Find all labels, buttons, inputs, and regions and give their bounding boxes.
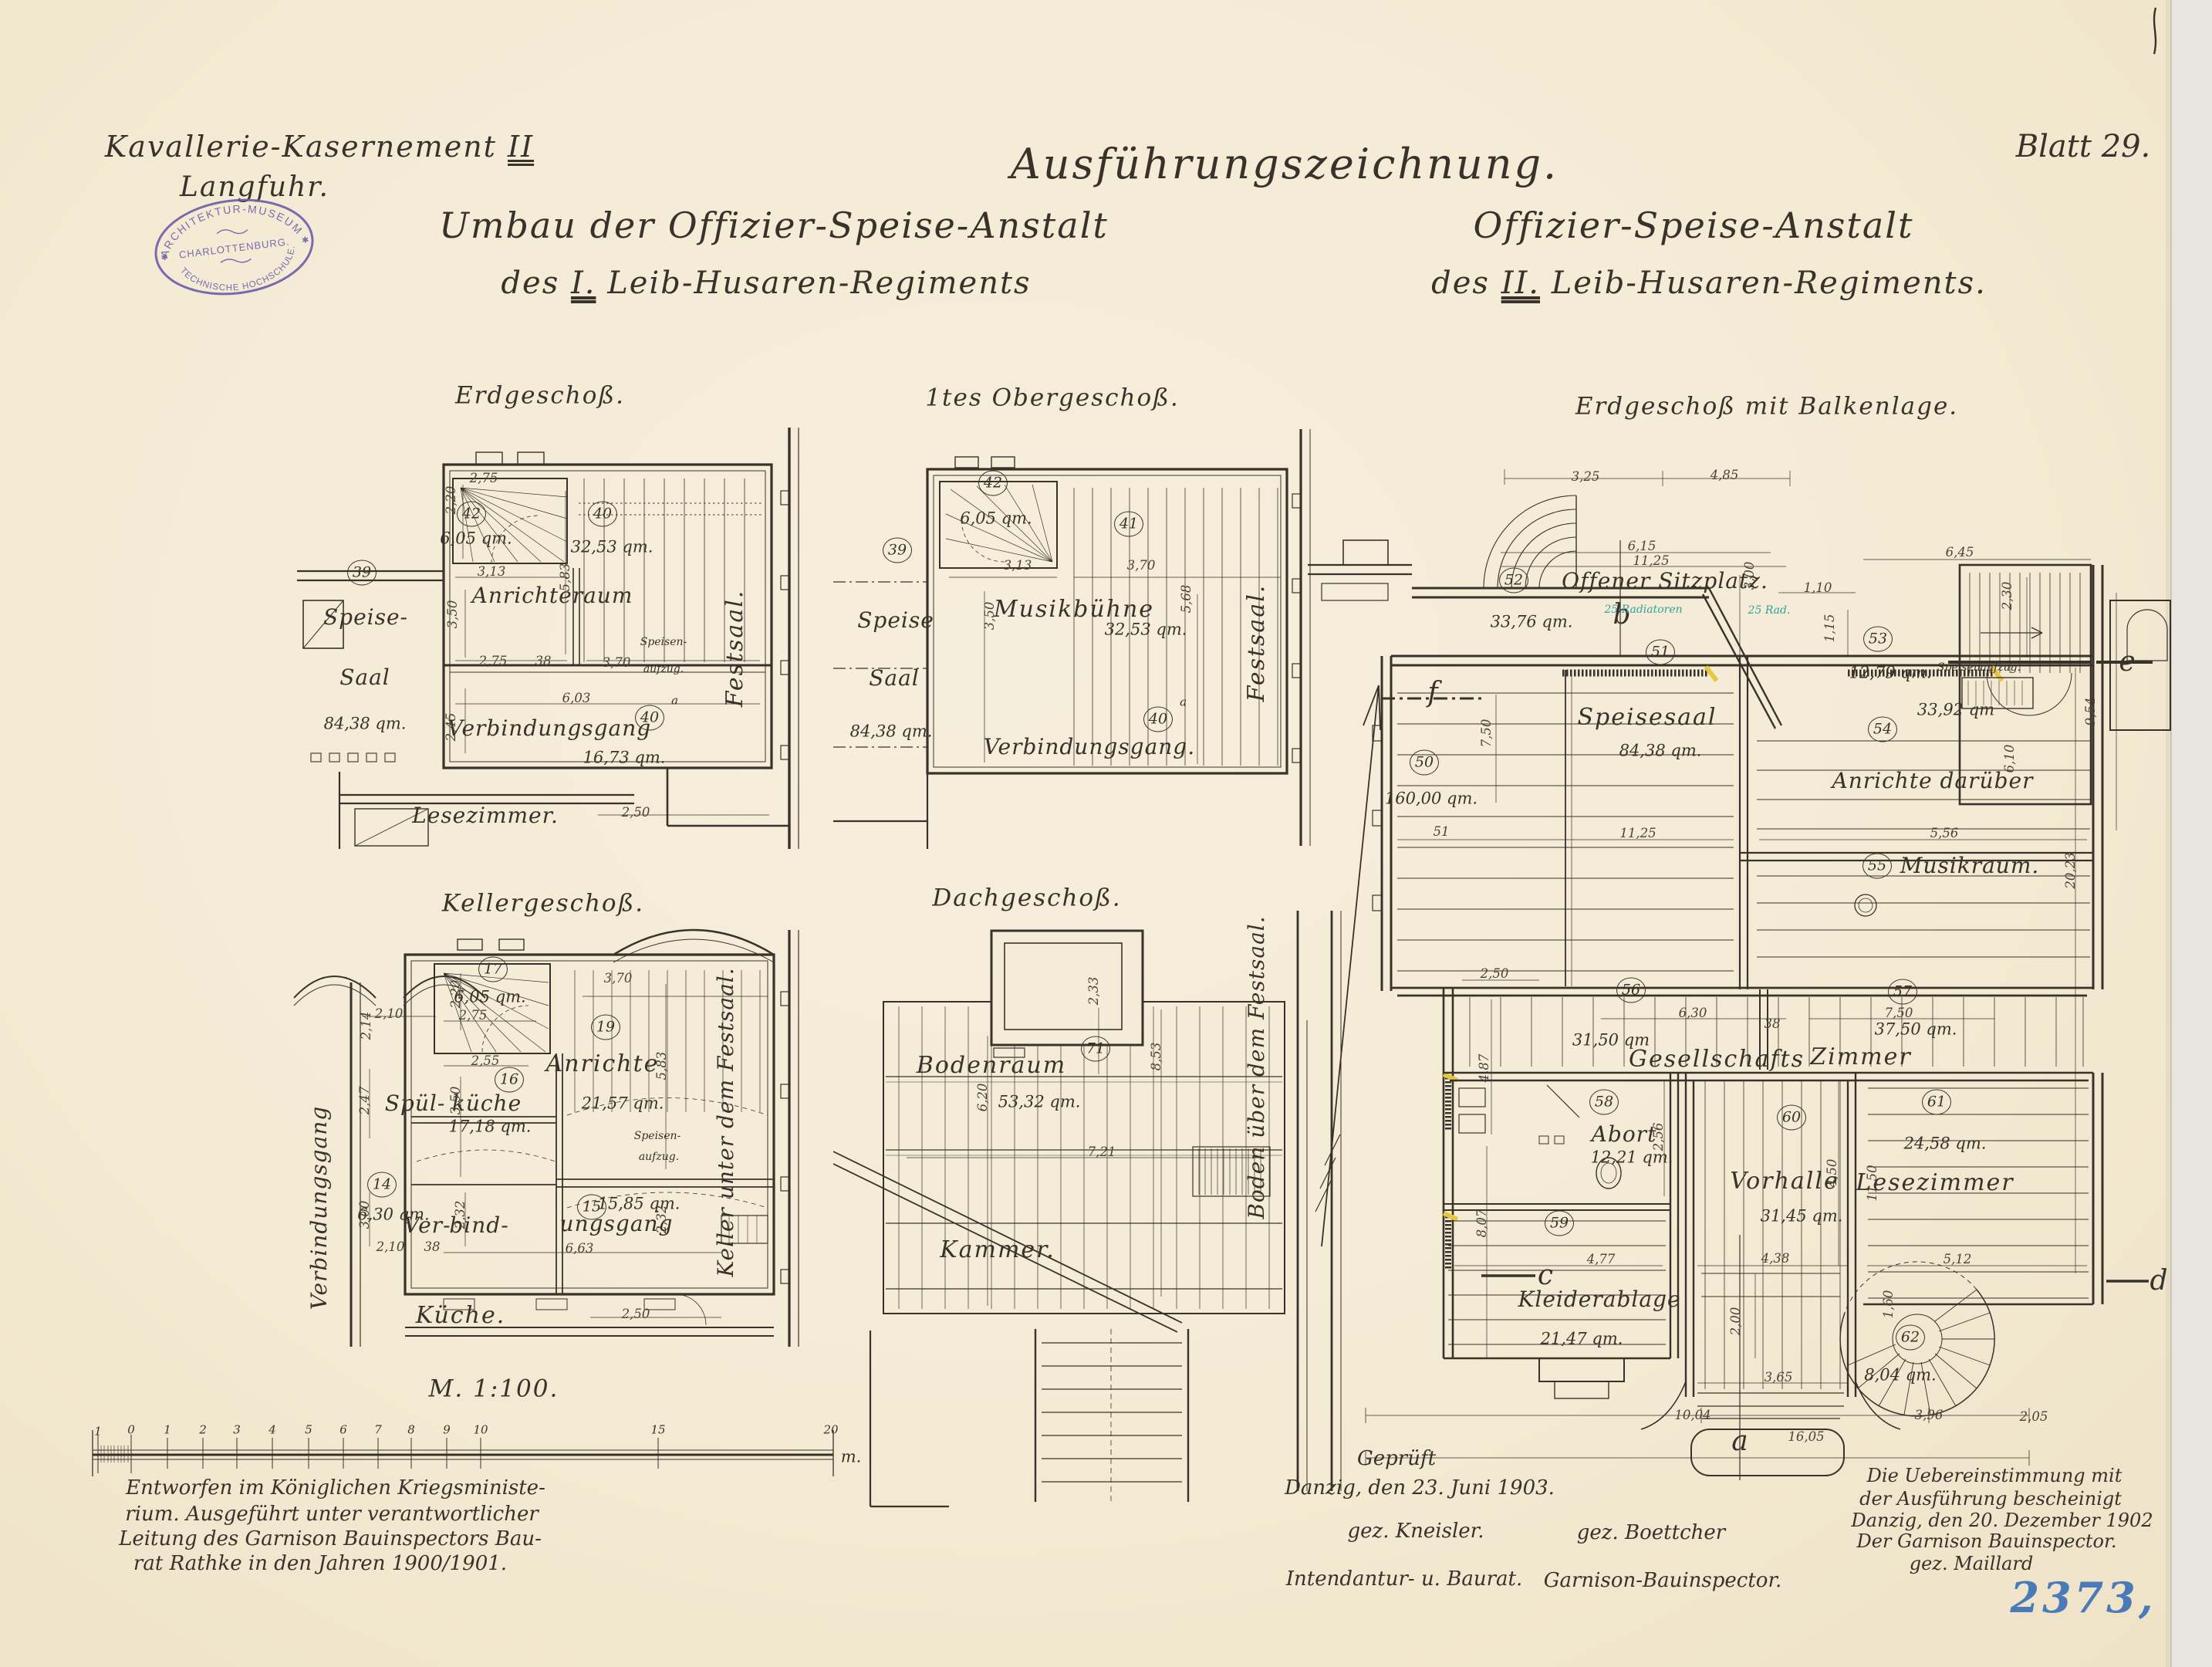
dim-label: 6,03	[562, 692, 591, 705]
note-designed-line: rat Rathke in den Jahren 1900/1901.	[133, 1554, 507, 1574]
dim-label: 38	[1765, 1018, 1781, 1031]
radiator-note: 25 Radiatoren	[1604, 604, 1682, 615]
drawing-sheet: Kavallerie-Kasernement II Langfuhr. Ausf…	[0, 0, 2212, 1667]
room-label-vertical: Festsaal.	[1245, 584, 1268, 702]
dim-label: 6,30	[1679, 1007, 1707, 1020]
site-title: Kavallerie-Kasernement II	[105, 132, 534, 161]
section-letter: d	[2150, 1267, 2167, 1295]
dim-label: 6,63	[566, 1243, 594, 1256]
dim-label: 3,13	[1004, 560, 1032, 573]
room-number: 52	[1499, 568, 1528, 593]
dim-label: 5,12	[1944, 1253, 1972, 1266]
dim-label: 3,50	[450, 1087, 463, 1115]
area-label: 16,73 qm.	[583, 750, 666, 766]
area-label: 12,21 qm.	[1591, 1150, 1673, 1166]
dim-label: 2,30	[2001, 582, 2014, 610]
dim-label: 2,75	[479, 655, 508, 668]
dim-label: 7,21	[1088, 1146, 1116, 1159]
scale-tick: 7	[374, 1425, 382, 1436]
dim-label: 1,10	[1804, 582, 1832, 595]
room-label: Anrichte darüber	[1832, 770, 2034, 792]
area-label: 17,18 qm.	[449, 1119, 532, 1135]
dim-label: 1,60	[1883, 1290, 1896, 1319]
room-label: Vorhalle	[1730, 1170, 1839, 1193]
room-number: 62	[1896, 1325, 1925, 1351]
plan-title-balkenlage: Erdgeschoß mit Balkenlage.	[1575, 395, 1958, 419]
title-right-rest: Leib-Husaren-Regiments.	[1552, 265, 1987, 301]
plan-balkenlage-drawing	[1308, 401, 2210, 1482]
plan-title-erdgeschoss: Erdgeschoß.	[455, 384, 625, 408]
title-left-des: des	[501, 265, 559, 301]
dim-label: 16,05	[1788, 1431, 1824, 1444]
title-left-line1: Umbau der Offizier-Speise-Anstalt	[439, 208, 1109, 243]
room-label: Kleiderablage	[1518, 1289, 1680, 1310]
room-label-vertical: Festsaal.	[724, 590, 747, 708]
dumbwaiter-label: aufzug.	[643, 664, 684, 675]
room-number: 54	[1868, 717, 1897, 742]
dim-label: 2,47	[359, 1087, 372, 1115]
dim-label: 2,50	[622, 1308, 650, 1321]
scale-tick: 3	[233, 1425, 241, 1436]
dim-label: 3,96	[1915, 1409, 1944, 1422]
dim-label: 2,56	[1653, 1123, 1666, 1151]
area-label: 8,04 qm.	[1864, 1368, 1936, 1384]
note-certified-line: der Ausführung bescheinigt	[1859, 1489, 2122, 1508]
room-number: 51	[1646, 640, 1675, 665]
room-number-suffix: a	[671, 689, 678, 713]
scale-tick: 4	[268, 1425, 276, 1436]
stamp-drawing: ARCHITEKTUR-MUSEUM CHARLOTTENBURG. TECHN…	[142, 184, 326, 313]
dim-label: 6,45	[1946, 546, 1974, 560]
dim-label: 3,50	[984, 602, 997, 631]
room-label-vertical: Boden über dem Festsaal.	[1246, 915, 1268, 1219]
title-left-rest: Leib-Husaren-Regiments	[607, 265, 1031, 301]
area-label: 84,38 qm.	[1619, 743, 1702, 759]
room-number: 16	[495, 1067, 524, 1093]
note-designed-line: rium. Ausgeführt unter verantwortlicher	[125, 1504, 539, 1524]
room-number: 60	[1777, 1105, 1806, 1131]
area-label: 53,32 qm.	[998, 1094, 1081, 1111]
dim-label: 2,10	[375, 1008, 404, 1021]
room-label: Musikbühne	[994, 598, 1154, 621]
dim-label: 2,00	[1730, 1307, 1743, 1336]
room-label: Saal	[869, 668, 920, 689]
area-label: 6,05 qm.	[440, 531, 512, 547]
room-label: Saal	[339, 667, 390, 688]
site-number: II	[508, 130, 534, 164]
dim-label: 4,50	[1826, 1159, 1839, 1188]
room-label: Verbindungsgang.	[984, 736, 1195, 758]
note-checked-date: Danzig, den 23. Juni 1903.	[1285, 1478, 1555, 1498]
scale-tick: 6	[339, 1425, 347, 1436]
dim-label: 2,50	[1481, 968, 1509, 981]
room-label: Anrichteraum	[472, 585, 633, 607]
area-label: 21,47 qm.	[1541, 1331, 1623, 1347]
room-number: 42	[978, 471, 1008, 496]
area-label: 84,38 qm.	[324, 716, 407, 732]
note-certified-line: Danzig, den 20. Dezember 1902	[1851, 1511, 2153, 1530]
room-number: 57	[1888, 979, 1917, 1005]
area-label: 21,57 qm.	[582, 1096, 664, 1112]
room-number: 41	[1114, 512, 1143, 537]
room-label: Verbindungsgang	[447, 718, 651, 739]
dim-label: 3,70	[604, 972, 633, 986]
room-label: Speise	[857, 610, 934, 631]
note-certified-line: Der Garnison Bauinspector.	[1857, 1532, 2117, 1550]
dim-label: 3,70	[603, 657, 631, 670]
dim-label: 9,54	[2085, 698, 2098, 726]
site-name: Kavallerie-Kasernement	[105, 130, 497, 164]
regiment-number-left: I.	[571, 265, 596, 301]
room-label: Ver-	[404, 1215, 451, 1236]
title-right-line1: Offizier-Speise-Anstalt	[1473, 208, 1913, 243]
signature: gez. Kneisler.	[1347, 1521, 1484, 1541]
signature: gez. Maillard	[1910, 1554, 2034, 1573]
regiment-number-right: II.	[1501, 265, 1540, 301]
room-number: 56	[1616, 978, 1646, 1003]
dim-label: 8,53	[1150, 1043, 1163, 1071]
room-label: Gesellschafts	[1629, 1048, 1805, 1071]
dim-label: 2,10	[377, 1241, 405, 1254]
room-label: Speisesaal	[1577, 706, 1717, 729]
dim-label: 4,87	[1478, 1054, 1491, 1083]
room-number: 14	[367, 1172, 397, 1198]
room-label: Musikraum.	[1900, 855, 2040, 877]
signature-role: Garnison-Bauinspector.	[1544, 1571, 1782, 1591]
signature: gez. Boettcher	[1577, 1523, 1725, 1543]
scale-tick: 5	[305, 1425, 312, 1436]
room-number: 17	[478, 957, 508, 982]
dim-label: 6,10	[2004, 745, 2017, 773]
room-label-vertical: Verbindungsgang	[309, 1106, 330, 1310]
dim-label: 2,50	[622, 806, 650, 820]
dim-label: 11,50	[1866, 1165, 1879, 1201]
scale-tick: 15	[650, 1425, 665, 1436]
room-number: 53	[1863, 627, 1893, 652]
area-label: 33,76 qm.	[1491, 614, 1573, 631]
dim-label: 4,38	[1761, 1253, 1790, 1266]
room-number: 59	[1545, 1211, 1574, 1236]
dim-label: 2,14	[360, 1012, 373, 1040]
dim-label: 11,25	[1633, 555, 1669, 568]
area-label: 6,05 qm.	[454, 989, 525, 1006]
note-designed-line: Entworfen im Königlichen Kriegsministe-	[126, 1478, 545, 1498]
section-letter: a	[1731, 1428, 1748, 1456]
room-number: 39	[883, 538, 912, 563]
scale-tick: 0	[127, 1425, 135, 1436]
dim-label: 6,15	[1628, 540, 1656, 553]
dumbwaiter-label: aufzug.	[639, 1151, 679, 1162]
dim-label: 2,05	[2020, 1411, 2048, 1424]
dim-label: 5,83	[656, 1052, 669, 1080]
room-label: Offener Sitzplatz.	[1562, 570, 1768, 592]
room-number: 50	[1410, 750, 1439, 776]
note-checked-title: Geprüft	[1357, 1449, 1436, 1469]
dim-label: 2,20	[445, 486, 458, 515]
dim-label: 1,15	[1824, 614, 1837, 643]
signature-role: Intendantur- u. Baurat.	[1286, 1569, 1522, 1589]
room-number: 19	[591, 1015, 620, 1040]
dim-label: 10,04	[1674, 1409, 1711, 1422]
scale-tick: 1	[164, 1425, 171, 1436]
area-label: 160,00 qm.	[1385, 791, 1477, 807]
dim-label: 7,50	[1481, 719, 1494, 748]
scale-label: M. 1:100.	[429, 1378, 559, 1402]
dim-label: 8,07	[1476, 1209, 1489, 1238]
room-number: 39	[347, 560, 377, 586]
dumbwaiter-label: Speisen-	[634, 1131, 681, 1141]
room-label: Abort	[1592, 1124, 1657, 1145]
dim-label: 20,23	[2065, 852, 2078, 888]
area-label: 12,79 qm.	[1849, 665, 1932, 681]
dim-label: 3,25	[1572, 471, 1600, 484]
plan-title-dachgeschoss: Dachgeschoß.	[932, 887, 1121, 911]
area-label: 31,45 qm.	[1761, 1209, 1843, 1225]
drawing-type-title: Ausführungszeichnung.	[1011, 144, 1559, 185]
dim-label: 5,56	[1930, 827, 1959, 840]
room-label: Anrichte	[546, 1053, 660, 1076]
room-number: 61	[1922, 1090, 1951, 1115]
archive-number: 2373,	[2010, 1577, 2156, 1618]
dim-label: 3,00	[1744, 562, 1757, 590]
radiator-note: 25 Rad.	[1748, 605, 1791, 616]
dim-label: 2,32	[656, 1205, 669, 1234]
scale-tick: 9	[443, 1425, 451, 1436]
dim-label: 7,50	[1885, 1007, 1913, 1020]
room-number: 40	[588, 502, 617, 527]
dim-label: 3,13	[478, 566, 506, 579]
dim-label: 2,75	[470, 472, 498, 485]
dim-label: 51	[1434, 826, 1450, 839]
note-certified-line: Die Uebereinstimmung mit	[1867, 1466, 2123, 1485]
dim-label: 38	[535, 655, 552, 668]
room-number: 71	[1081, 1036, 1110, 1062]
architecture-museum-stamp: ARCHITEKTUR-MUSEUM CHARLOTTENBURG. TECHN…	[142, 184, 327, 316]
room-number: 58	[1589, 1090, 1619, 1115]
dim-label: 3,70	[1127, 560, 1156, 573]
title-right-des: des	[1431, 265, 1490, 301]
section-letter: e	[2119, 648, 2135, 676]
dumbwaiter-label: Speisen-	[640, 637, 687, 648]
room-number-suffix: a	[1180, 691, 1187, 715]
dim-label: 5,83	[559, 563, 572, 592]
dim-label: 2,20	[450, 980, 463, 1009]
dim-label: 2,45	[445, 713, 458, 742]
sheet-number: Blatt 29.	[2016, 131, 2151, 162]
note-designed-line: Leitung des Garnison Bauinspectors Bau-	[119, 1529, 542, 1549]
scale-tick: 2	[199, 1425, 207, 1436]
svg-text:✱: ✱	[160, 253, 169, 263]
room-label: Küche.	[416, 1304, 506, 1327]
scale-tick: 20	[823, 1425, 838, 1436]
section-letter: f	[1427, 679, 1437, 707]
dim-label: 5,68	[1180, 585, 1194, 614]
room-label: Lesezimmer.	[412, 805, 559, 827]
dim-label: 3,65	[1765, 1371, 1793, 1385]
dim-label: 38	[424, 1241, 441, 1254]
scale-unit: m.	[841, 1449, 862, 1466]
room-label: Spül-	[385, 1093, 446, 1114]
dumbwaiter-label: Speisenaufzug.	[1937, 662, 2021, 673]
dim-label: 4,77	[1587, 1253, 1616, 1266]
area-label: 24,58 qm.	[1904, 1136, 1987, 1152]
title-left-line2: des I. Leib-Husaren-Regiments	[501, 268, 1031, 299]
pen-mark	[2137, 6, 2176, 60]
room-number: 42	[457, 502, 486, 527]
scale-tick: 8	[407, 1425, 415, 1436]
dim-label: 4,85	[1711, 469, 1739, 482]
room-label: Bodenraum	[917, 1054, 1066, 1077]
scale-tick: 10	[473, 1425, 488, 1436]
title-right-line2: des II. Leib-Husaren-Regiments.	[1431, 268, 1987, 299]
room-label-vertical: Keller unter dem Festsaal.	[715, 967, 737, 1276]
dim-label: 2,33	[1088, 977, 1101, 1006]
dim-label: 6,20	[977, 1084, 990, 1112]
svg-text:✱: ✱	[301, 235, 309, 245]
dim-label: 2,75	[459, 1009, 488, 1023]
dim-label: 2,55	[471, 1055, 500, 1068]
area-label: 6,05 qm.	[960, 511, 1032, 527]
area-label: 37,50 qm.	[1875, 1022, 1957, 1038]
room-label: Lesezimmer	[1856, 1172, 2014, 1195]
stamp-middle-text: CHARLOTTENBURG.	[178, 235, 290, 260]
dim-label: 3,00	[359, 1201, 372, 1229]
room-number: 40a	[1143, 707, 1173, 732]
dim-label: 3,50	[447, 600, 460, 629]
dim-label: 2,32	[454, 1201, 468, 1229]
room-label: Zimmer	[1810, 1046, 1911, 1069]
room-number: 55	[1862, 854, 1892, 879]
area-label: 84,38 qm.	[850, 724, 933, 740]
plan-title-kellergeschoss: Kellergeschoß.	[442, 892, 644, 916]
room-label: Kammer.	[940, 1239, 1055, 1262]
section-letter: c	[1538, 1262, 1553, 1290]
area-label: 32,53 qm.	[1105, 622, 1187, 638]
room-label: Speise-	[323, 607, 408, 628]
dim-label: 11,25	[1619, 827, 1656, 840]
area-label: 33,92 qm	[1917, 702, 1994, 719]
scale-tick: 1	[94, 1426, 102, 1438]
plan-title-obergeschoss: 1tes Obergeschoß.	[925, 387, 1179, 411]
area-label: 32,53 qm.	[571, 539, 653, 556]
